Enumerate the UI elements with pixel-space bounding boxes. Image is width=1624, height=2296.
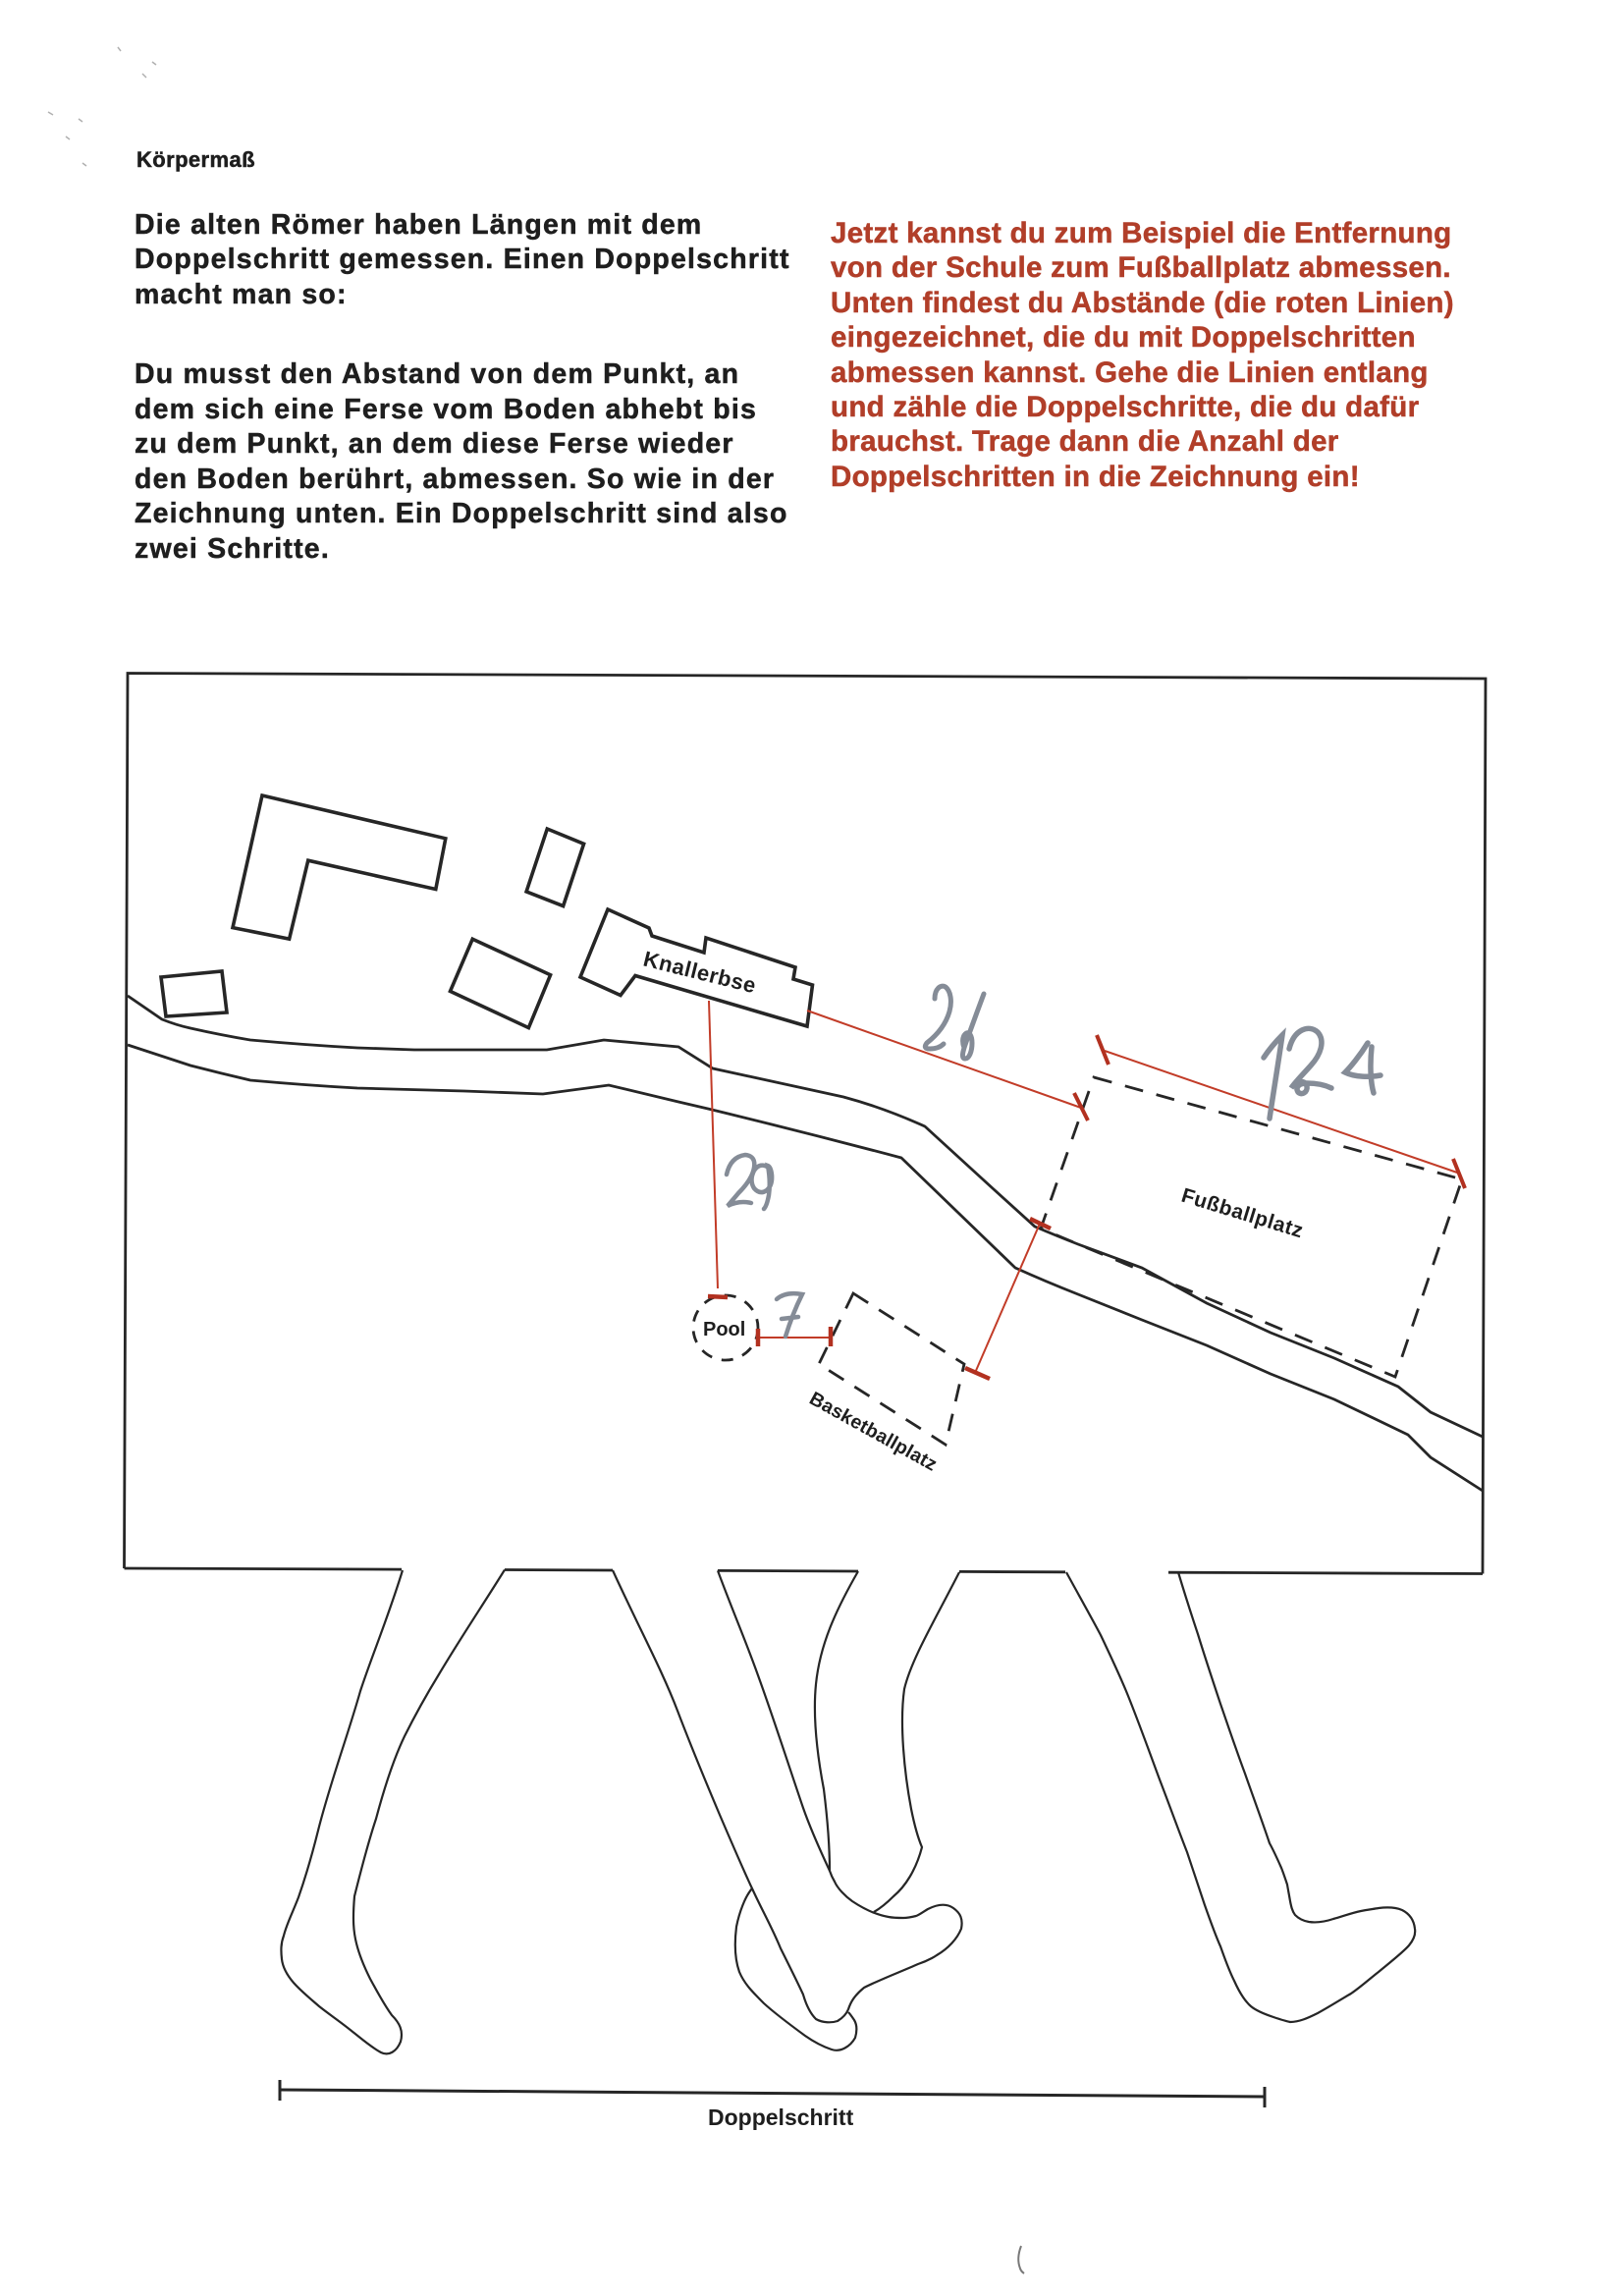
svg-text:Knallerbse: Knallerbse [641,947,759,999]
svg-text:Fußballplatz: Fußballplatz [1179,1184,1307,1243]
svg-text:Basketballplatz: Basketballplatz [806,1388,941,1476]
svg-text:Doppelschritt: Doppelschritt [708,2105,854,2130]
svg-text:Pool: Pool [703,1319,745,1340]
